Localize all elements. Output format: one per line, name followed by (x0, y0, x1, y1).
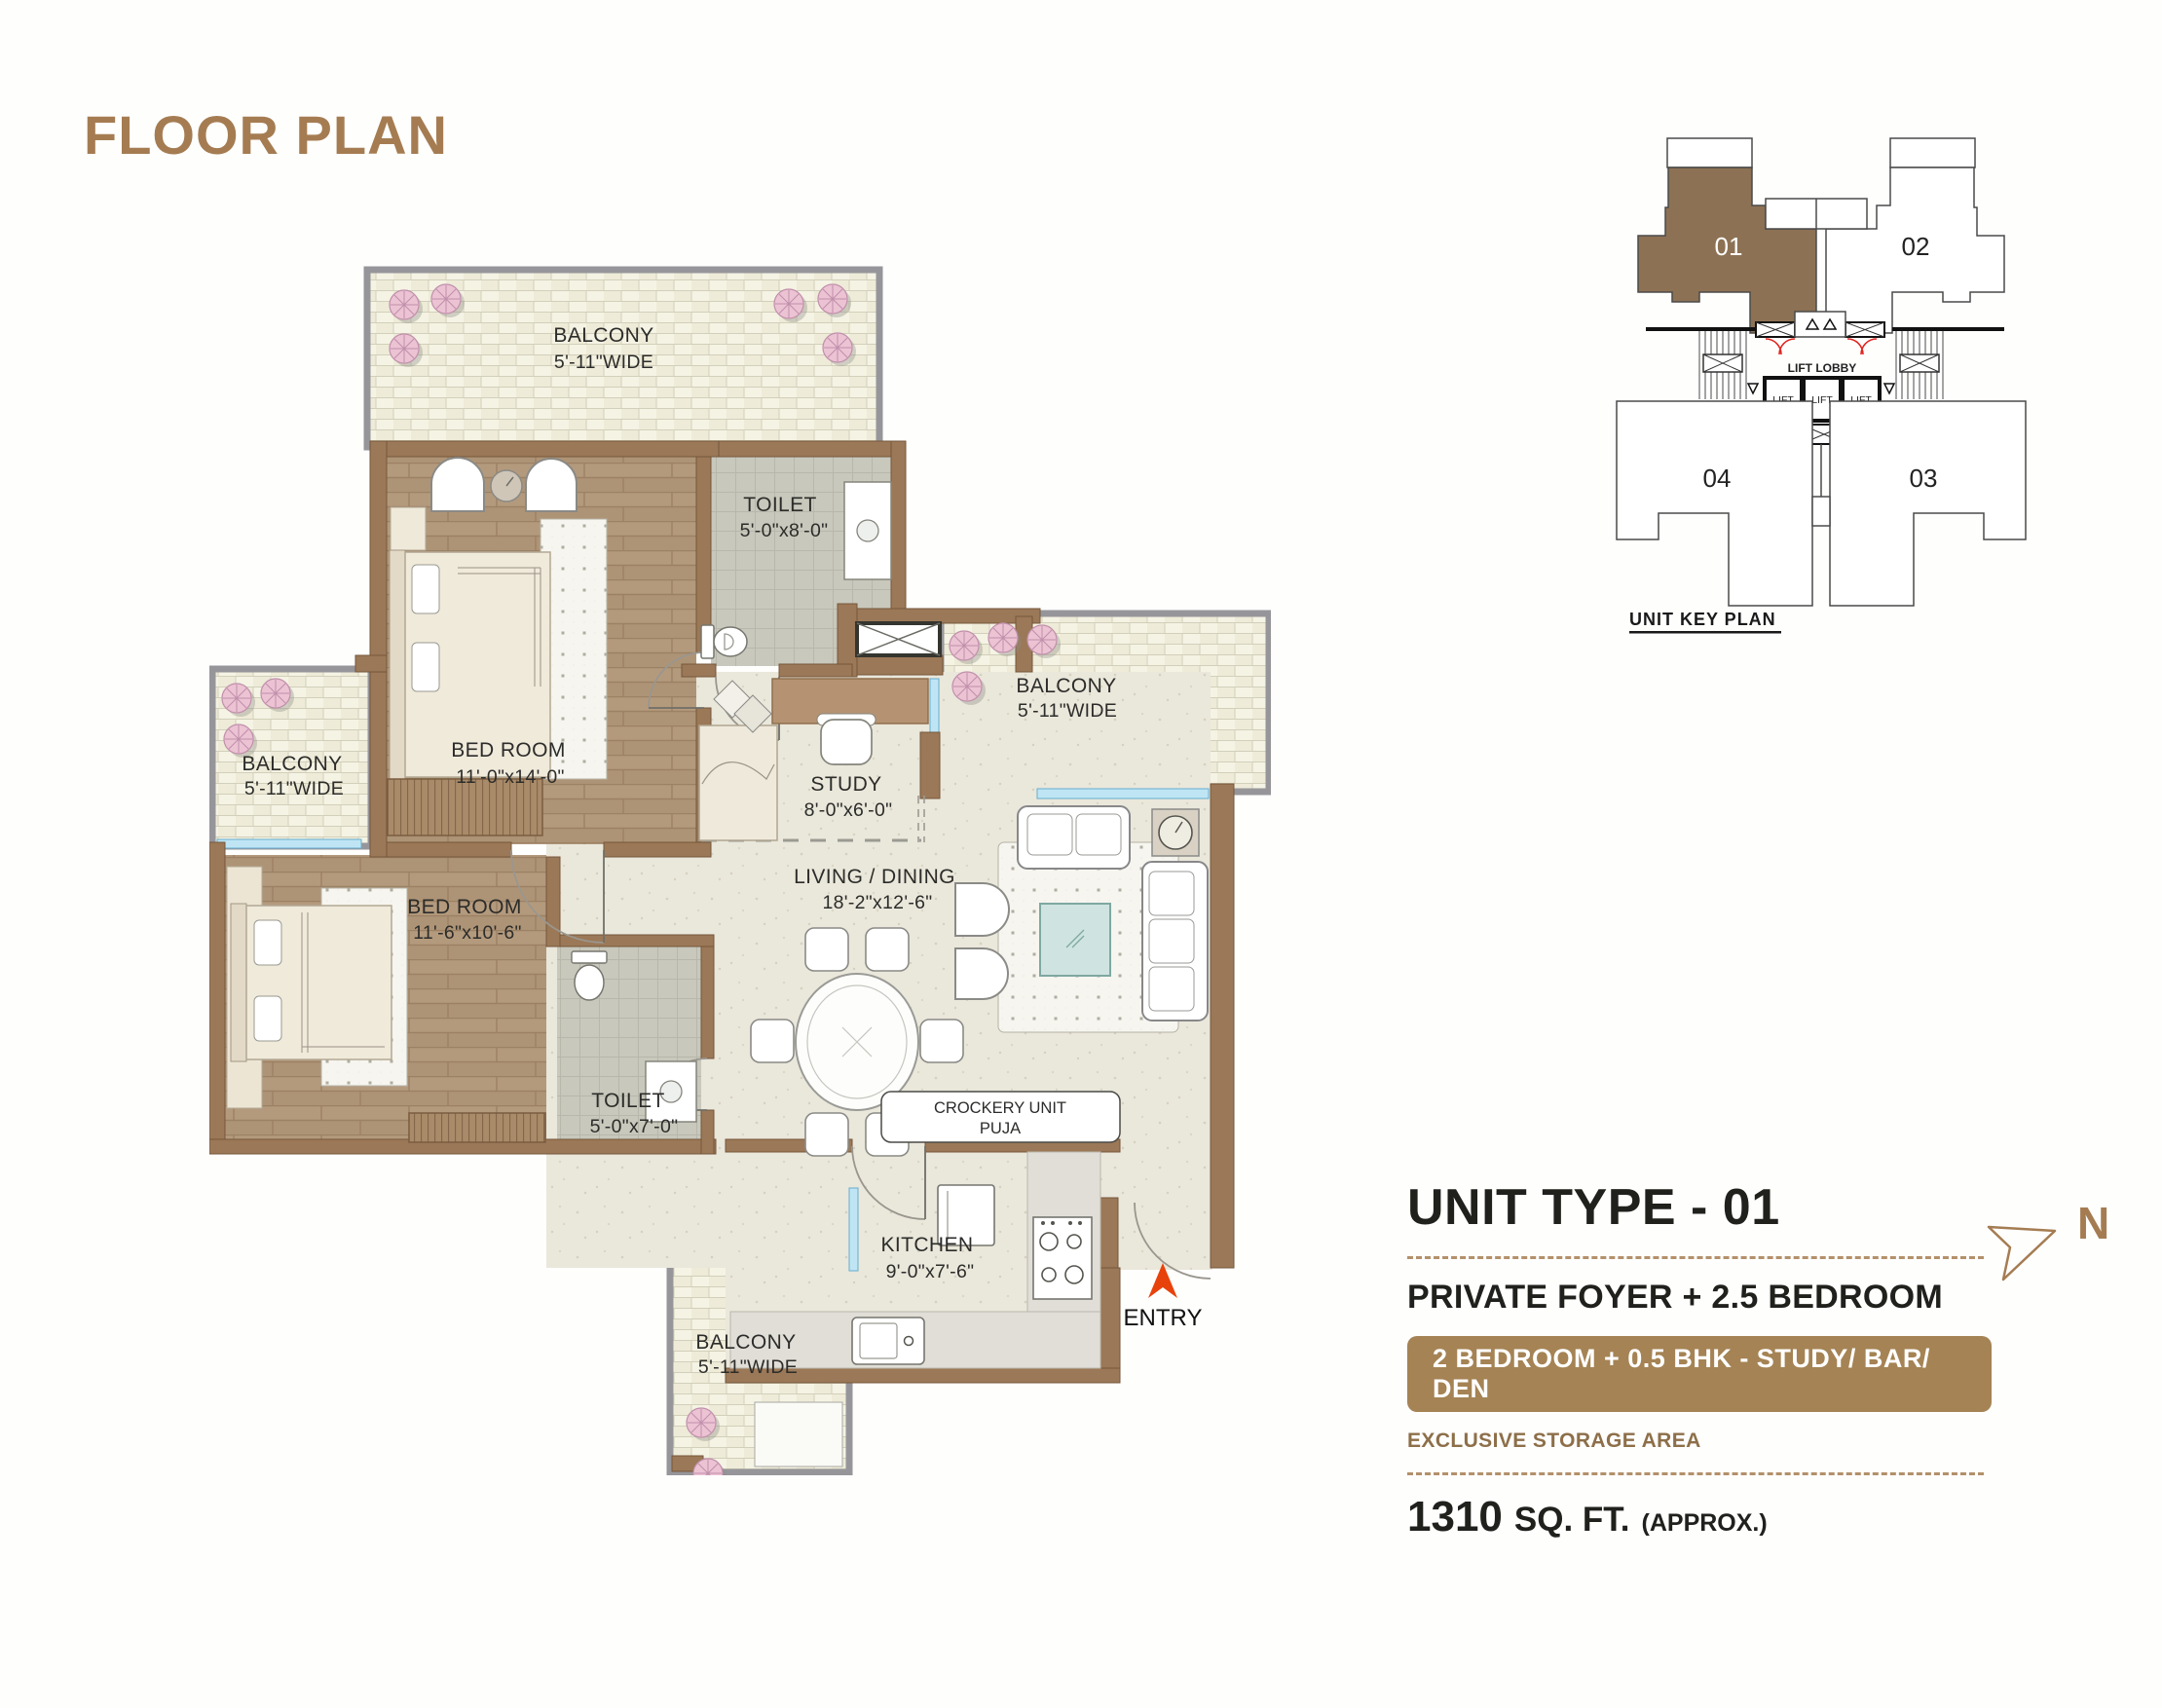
page-background: FLOOR PLAN (0, 0, 2162, 1708)
keyplan-unit-01-label: 01 (1715, 232, 1743, 261)
keyplan-unit-03-label: 03 (1910, 464, 1938, 493)
dims-study: 8'-0"x6'-0" (804, 799, 893, 821)
label-toilet-2: TOILET (591, 1090, 665, 1112)
dims-bedroom-1: 11'-0"x14'-0" (456, 766, 565, 788)
dims-balcony-top: 5'-11"WIDE (554, 352, 653, 373)
label-bedroom-1: BED ROOM (451, 739, 566, 761)
keyplan-lift-lobby-label: LIFT LOBBY (1788, 361, 1857, 375)
dims-balcony-bottom: 5'-11"WIDE (698, 1356, 798, 1378)
area-approx: (APPROX.) (1642, 1509, 1768, 1538)
unit-key-plan: LIFT LOBBY LIFT LIFT LIFT (1602, 80, 2040, 645)
entry-label: ENTRY (1124, 1305, 1203, 1331)
label-kitchen: KITCHEN (881, 1234, 974, 1256)
keyplan-unit-02-label: 02 (1902, 232, 1930, 261)
unit-details: UNIT TYPE - 01 PRIVATE FOYER + 2.5 BEDRO… (1407, 1178, 1992, 1541)
dims-balcony-right: 5'-11"WIDE (1018, 700, 1117, 722)
dims-toilet-2: 5'-0"x7'-0" (590, 1116, 679, 1137)
unit-key-plan-caption: UNIT KEY PLAN (1629, 610, 1776, 629)
dashed-separator-2 (1407, 1472, 1984, 1475)
storage-shaft (857, 623, 940, 655)
label-study: STUDY (810, 773, 881, 796)
entry-marker: ENTRY (1124, 1263, 1203, 1331)
label-living-dining: LIVING / DINING (794, 866, 955, 888)
dims-balcony-left: 5'-11"WIDE (244, 778, 344, 799)
area-row: 1310 SQ. FT. (APPROX.) (1407, 1493, 1992, 1541)
keyplan-unit-04-label: 04 (1703, 464, 1732, 493)
unit-type-title: UNIT TYPE - 01 (1407, 1178, 1992, 1237)
unit-key-plan-drawing: LIFT LOBBY LIFT LIFT LIFT (1602, 80, 2040, 645)
unit-config-badge: 2 BEDROOM + 0.5 BHK - STUDY/ BAR/ DEN (1407, 1336, 1992, 1412)
label-balcony-bottom: BALCONY (695, 1331, 796, 1354)
keyplan-unit-03-shape (1830, 401, 2026, 606)
dims-living-dining: 18'-2"x12'-6" (823, 892, 933, 913)
label-bedroom-2: BED ROOM (407, 896, 522, 918)
label-toilet-1: TOILET (743, 494, 817, 516)
floor-plan-drawing: CROCKERY UNIT PUJA ENTRY BALCONY 5'-11"W… (209, 258, 1271, 1475)
area-unit: SQ. FT. (1514, 1501, 1630, 1540)
dims-kitchen: 9'-0"x7'-6" (886, 1261, 975, 1282)
dims-toilet-1: 5'-0"x8'-0" (740, 520, 829, 541)
page-title: FLOOR PLAN (84, 103, 448, 167)
crockery-label-line2: PUJA (980, 1120, 1021, 1137)
crockery-label-line1: CROCKERY UNIT (934, 1099, 1066, 1117)
dims-bedroom-2: 11'-6"x10'-6" (413, 922, 522, 944)
north-label: N (2077, 1198, 2109, 1248)
label-balcony-left: BALCONY (242, 753, 342, 775)
label-balcony-top: BALCONY (553, 324, 653, 347)
floor-plan: CROCKERY UNIT PUJA ENTRY BALCONY 5'-11"W… (209, 258, 1271, 1475)
storage-note: EXCLUSIVE STORAGE AREA (1407, 1430, 1992, 1453)
entry-floor (1118, 1198, 1212, 1270)
crockery-unit: CROCKERY UNIT PUJA (881, 1092, 1120, 1142)
label-balcony-right: BALCONY (1016, 675, 1116, 697)
keyplan-unit-04-shape (1617, 401, 1812, 606)
north-arrow-icon (1989, 1227, 2055, 1280)
north-indicator: N (1975, 1190, 2141, 1317)
unit-subtitle: PRIVATE FOYER + 2.5 BEDROOM (1407, 1279, 1992, 1317)
area-value: 1310 (1407, 1493, 1503, 1541)
bottom-balcony-items (755, 1402, 842, 1467)
dashed-separator-1 (1407, 1256, 1984, 1259)
